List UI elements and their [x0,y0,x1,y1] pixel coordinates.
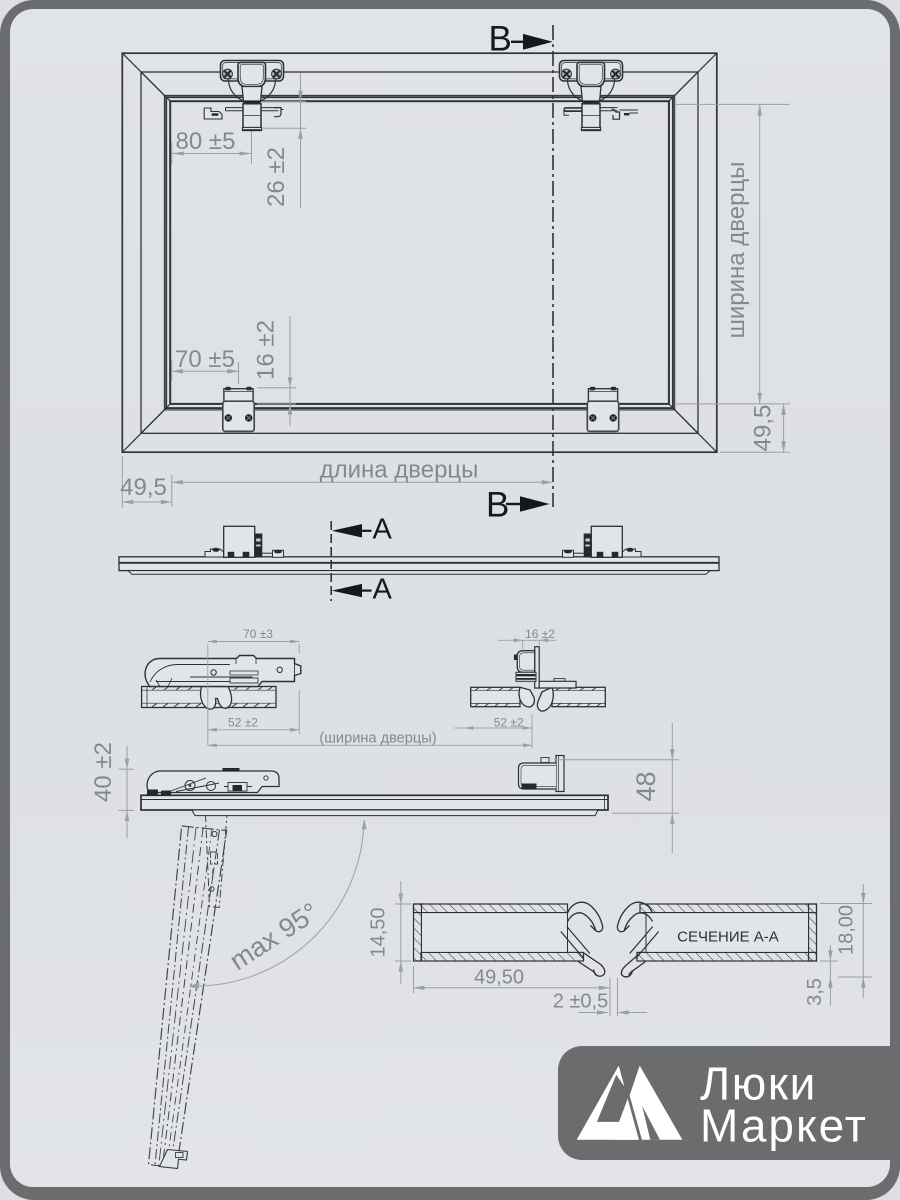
svg-text:16 ±2: 16 ±2 [525,627,555,641]
svg-text:16 ±2: 16 ±2 [253,320,280,380]
svg-text:80 ±5: 80 ±5 [176,128,236,155]
svg-text:18,00: 18,00 [835,905,857,955]
svg-text:ширина дверцы: ширина дверцы [723,162,750,339]
svg-text:14,50: 14,50 [368,907,390,957]
svg-text:3,5: 3,5 [804,978,826,1006]
svg-text:48: 48 [631,771,661,801]
svg-text:49,50: 49,50 [474,967,524,989]
svg-text:70 ±3: 70 ±3 [243,627,273,641]
svg-text:40 ±2: 40 ±2 [90,742,117,802]
svg-text:(ширина дверцы): (ширина дверцы) [319,731,436,747]
svg-text:49,5: 49,5 [120,474,167,501]
svg-text:70 ±5: 70 ±5 [175,346,235,373]
svg-text:B: B [486,486,509,525]
svg-text:длина дверцы: длина дверцы [320,457,479,484]
svg-text:A: A [373,574,393,606]
svg-text:Маркет: Маркет [700,1100,868,1152]
svg-text:52 ±2: 52 ±2 [494,716,524,730]
svg-text:2 ±0,5: 2 ±0,5 [553,991,608,1013]
svg-text:52 ±2: 52 ±2 [228,716,258,730]
svg-text:max 95°: max 95° [224,897,324,976]
svg-text:26 ±2: 26 ±2 [263,147,290,207]
svg-text:B: B [489,20,512,59]
svg-text:A: A [373,514,393,546]
svg-text:49,5: 49,5 [750,405,777,452]
svg-text:СЕЧЕНИЕ A-A: СЕЧЕНИЕ A-A [677,929,779,946]
